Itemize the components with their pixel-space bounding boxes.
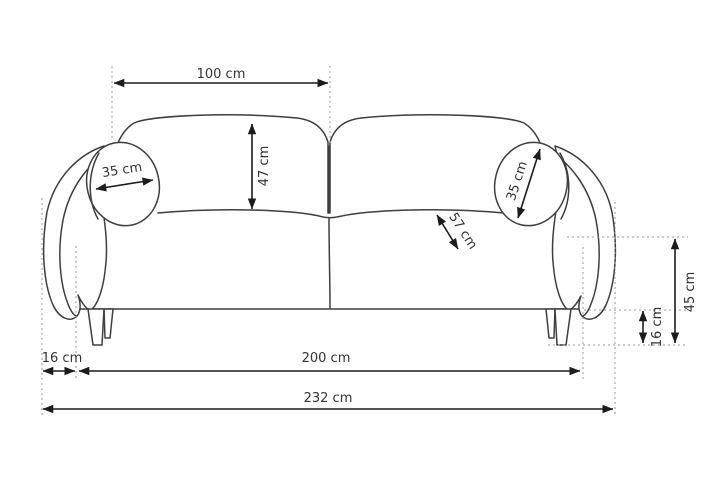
dimension-label-backrest-width: 100 cm [197,67,246,82]
dimension-label-seat-height: 45 cm [683,272,698,313]
dimension-inner-width: 200 cm [79,351,580,371]
dimension-label-seat-depth: 57 cm [445,210,480,252]
dimension-leg-height: 16 cm [643,307,665,348]
sofa-leg-right-front [555,309,571,345]
dimension-label-inner-width: 200 cm [302,351,351,366]
dimension-label-leg-height: 16 cm [650,307,665,348]
sofa-dimension-diagram: 100 cm 47 cm 35 cm 35 cm 57 cm 45 cm [0,0,720,480]
dimension-backrest-width: 100 cm [114,67,328,83]
dimension-seat-height: 45 cm [675,239,698,343]
diagram-svg: 100 cm 47 cm 35 cm 35 cm 57 cm 45 cm [0,0,720,480]
sofa-leg-left-rear [104,309,113,338]
sofa-leg-left-front [88,309,104,345]
dimension-label-total-width: 232 cm [304,391,353,406]
dimension-label-backrest-cushion-height: 47 cm [257,146,272,187]
sofa-leg-right-rear [546,309,555,338]
dimension-total-width: 232 cm [43,391,613,409]
sofa-illustration [44,115,616,345]
dimension-seat-depth: 57 cm [437,210,480,252]
seat-center-seam [329,219,330,308]
dimension-label-arm-overhang: 16 cm [42,351,83,366]
